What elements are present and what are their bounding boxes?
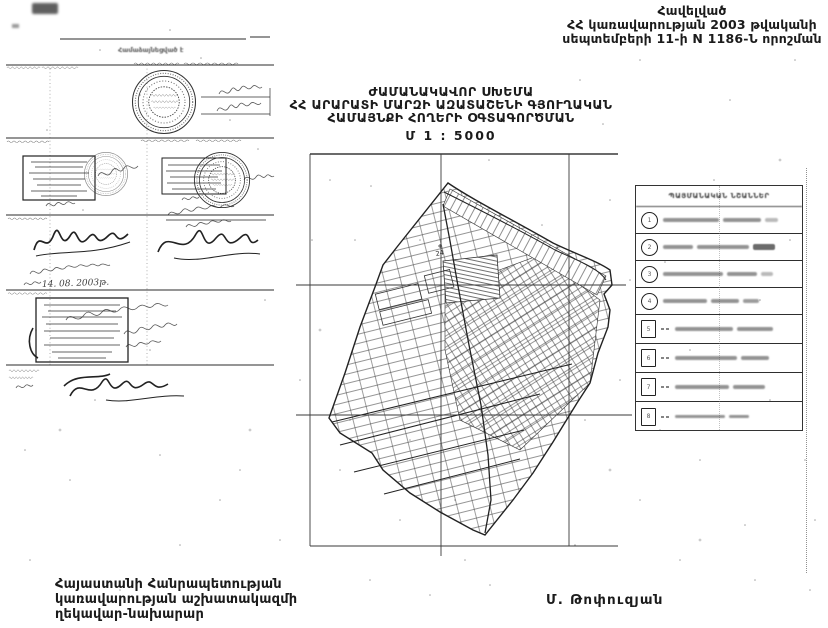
document-title: ԺԱՄԱՆԱԿԱՎՈՐ ՍԽԵՄԱ ՀՀ ԱՐԱՐԱՏԻ ՄԱՐԶԻ ԱԶԱՏԱ… — [276, 85, 626, 125]
handwritten-note-and-date: 14. 08. 2003թ. — [24, 264, 110, 290]
rect-stamp-bottom — [29, 298, 177, 362]
legend-panel: ՊԱՅՄԱՆԱԿԱՆ ՆՇԱՆՆԵՐ 1 2 3 4 5 6 7 — [635, 185, 803, 431]
signature-large-right — [158, 205, 266, 260]
legend-symbol-number: 4 — [648, 298, 652, 305]
legend-fold-crease — [719, 186, 720, 430]
legend-symbol-square-8: 8 — [641, 408, 656, 426]
cadastral-map: 24 — [292, 142, 638, 568]
annex-line-2: ՀՀ կառավարության 2003 թվականի — [556, 18, 828, 32]
signature-bottom — [16, 374, 184, 401]
page-fold-line — [806, 168, 807, 573]
footer-line-1: Հայաստանի Հանրապետության — [55, 577, 297, 592]
annex-line-1: Հավելված — [556, 4, 828, 18]
legend-label-illegible — [663, 218, 797, 222]
legend-symbol-circle-1: 1 — [641, 212, 658, 229]
round-seal-stamp-faint — [84, 152, 127, 195]
legend-label-illegible — [663, 244, 797, 250]
scan-ink-smudge — [32, 3, 58, 14]
approvals-header-blurred: Համաձայնեցված է — [118, 46, 184, 54]
legend-label-illegible — [663, 299, 797, 303]
legend-symbol-square-5: 5 — [641, 320, 656, 338]
legend-symbol-circle-3: 3 — [641, 266, 658, 283]
footer-line-2: կառավարության աշխատակազմի — [55, 592, 297, 607]
annex-note: Հավելված ՀՀ կառավարության 2003 թվականի ս… — [556, 4, 828, 46]
illegible-cell-headers — [7, 63, 241, 379]
round-seal-stamp-right — [194, 152, 249, 207]
annex-line-3: սեպտեմբերի 11-ի N 1186-Ն որոշման — [556, 32, 828, 46]
legend-symbol-number: 2 — [648, 244, 652, 251]
map-scale-label: Մ 1 : 5000 — [276, 128, 626, 143]
legend-label-illegible — [663, 272, 797, 276]
legend-symbol-number: 5 — [647, 326, 651, 333]
approvals-stamps-panel: Համաձայնեցված է — [6, 28, 288, 420]
round-seal-stamp-top — [133, 71, 196, 134]
footer-signatory-title: Հայաստանի Հանրապետության կառավարության ա… — [55, 577, 297, 622]
signature-large-left — [34, 230, 130, 256]
legend-title: ՊԱՅՄԱՆԱԿԱՆ ՆՇԱՆՆԵՐ — [636, 186, 802, 207]
legend-label-illegible — [661, 385, 797, 389]
signatures-top-row — [201, 85, 270, 116]
footer-line-3: ղեկավար-նախարար — [55, 607, 297, 622]
title-line-3: ՀԱՄԱՅՆՔԻ ՀՈՂԵՐԻ ՕԳՏԱԳՈՐԾՄԱՆ — [276, 111, 626, 124]
footer-signature-name: Մ. Թոփուզյան — [546, 592, 664, 608]
legend-label-illegible — [661, 327, 797, 331]
scanned-document-page: Հավելված ՀՀ կառավարության 2003 թվականի ս… — [0, 0, 828, 628]
legend-label-illegible — [661, 415, 797, 419]
legend-label-illegible — [661, 356, 797, 360]
legend-symbol-number: 8 — [647, 413, 651, 420]
legend-symbol-number: 6 — [647, 355, 651, 362]
legend-symbol-number: 3 — [648, 271, 652, 278]
handwritten-date: 14. 08. 2003թ. — [42, 278, 110, 290]
legend-symbol-circle-4: 4 — [641, 293, 658, 310]
rect-stamp-right — [162, 158, 226, 194]
legend-symbol-circle-2: 2 — [641, 239, 658, 256]
legend-symbol-number: 1 — [648, 217, 652, 224]
legend-symbol-number: 7 — [647, 384, 651, 391]
rect-stamp-left — [23, 156, 95, 206]
legend-symbol-square-7: 7 — [641, 378, 656, 396]
svg-text:24: 24 — [435, 249, 445, 258]
legend-symbol-square-6: 6 — [641, 349, 656, 367]
